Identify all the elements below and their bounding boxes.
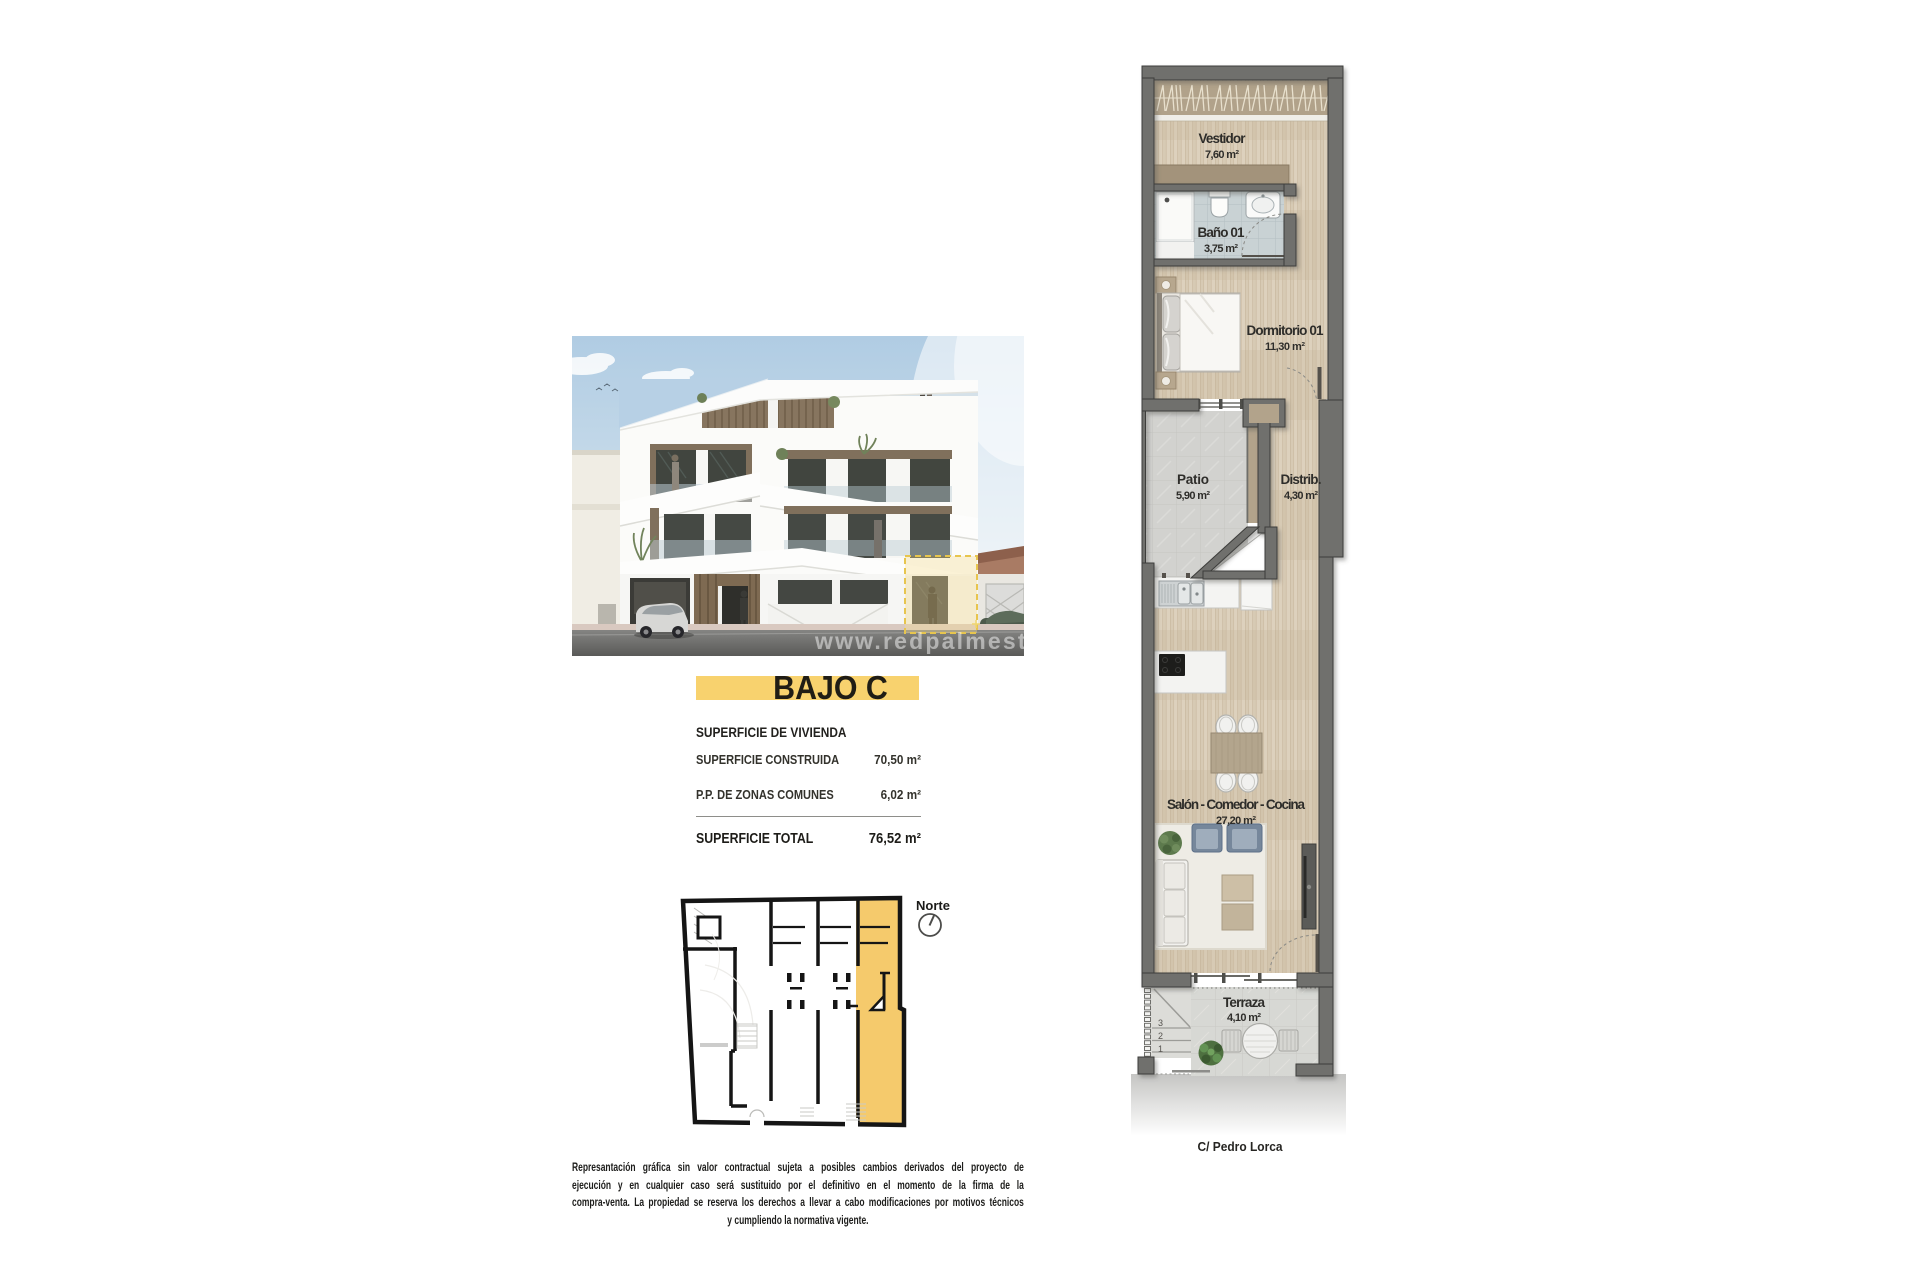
svg-text:Salón - Comedor - Cocina: Salón - Comedor - Cocina [1167,797,1305,812]
svg-text:27,20 m²: 27,20 m² [1216,815,1256,827]
svg-text:www.redpalmesta: www.redpalmesta [814,628,1024,654]
svg-text:3: 3 [1158,1018,1163,1028]
svg-text:11,30 m²: 11,30 m² [1265,341,1305,353]
svg-text:Distrib.: Distrib. [1281,472,1322,487]
svg-text:Dormitorio 01: Dormitorio 01 [1247,323,1324,338]
svg-text:Terraza: Terraza [1223,995,1265,1010]
svg-text:2: 2 [1158,1031,1163,1041]
svg-text:7,60 m²: 7,60 m² [1205,149,1239,161]
svg-text:Baño 01: Baño 01 [1198,225,1245,240]
svg-text:Patio: Patio [1177,472,1209,487]
svg-text:1: 1 [1158,1044,1163,1054]
svg-text:4,30 m²: 4,30 m² [1284,490,1318,502]
svg-text:5,90 m²: 5,90 m² [1176,490,1210,502]
svg-text:4,10 m²: 4,10 m² [1227,1012,1261,1024]
svg-text:Vestidor: Vestidor [1199,131,1247,146]
svg-text:3,75 m²: 3,75 m² [1204,243,1238,255]
svg-text:Norte: Norte [916,898,950,913]
